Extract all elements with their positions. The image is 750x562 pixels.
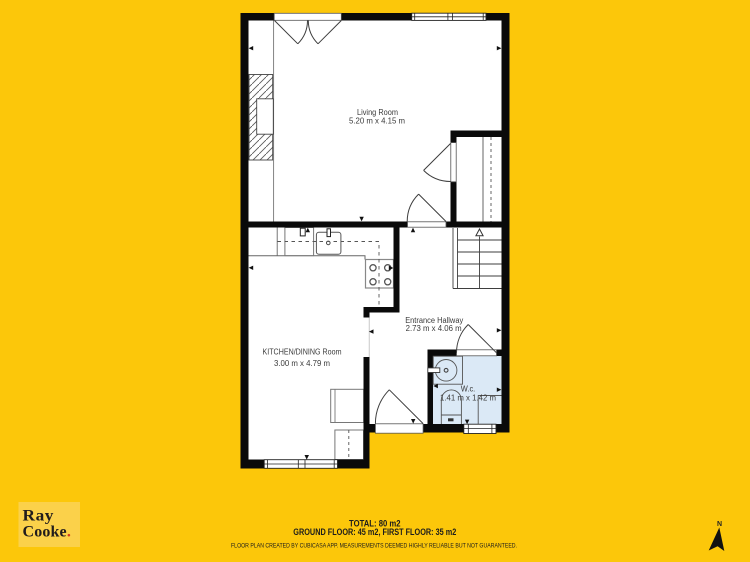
svg-text:2.73 m x 4.06 m: 2.73 m x 4.06 m [406,324,462,333]
svg-text:Cooke.: Cooke. [23,524,71,541]
svg-text:N: N [717,521,722,528]
svg-text:5.20 m x 4.15 m: 5.20 m x 4.15 m [349,117,405,126]
svg-text:3.00 m x 4.79 m: 3.00 m x 4.79 m [274,359,330,368]
svg-text:GROUND FLOOR: 45 m2, FIRST FLO: GROUND FLOOR: 45 m2, FIRST FLOOR: 35 m2 [293,527,456,537]
svg-text:Ray: Ray [23,508,55,525]
svg-text:W.c.: W.c. [461,384,476,393]
svg-text:FLOOR PLAN CREATED BY CUBICASA: FLOOR PLAN CREATED BY CUBICASA APP. MEAS… [231,543,517,550]
svg-text:KITCHEN/DINING Room: KITCHEN/DINING Room [263,348,342,357]
svg-text:1.41 m x 1.42 m: 1.41 m x 1.42 m [440,393,496,402]
